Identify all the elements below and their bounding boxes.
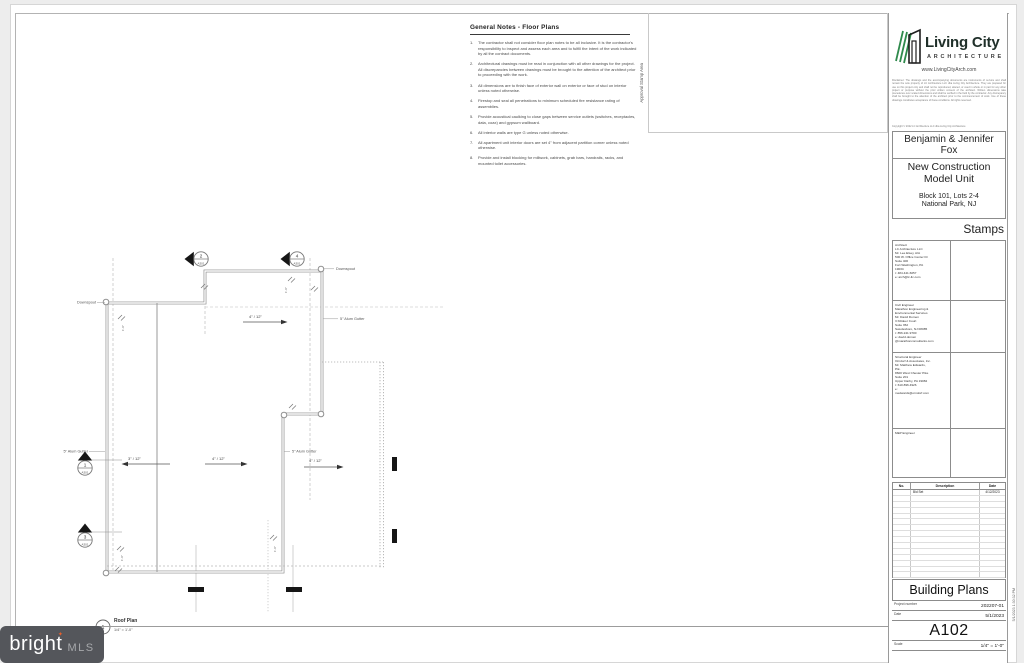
project-title: New Construction Model Unit: [893, 159, 1005, 185]
mep-engineer-info: MEP Engineer: [893, 429, 951, 477]
approval-stamp-label: Approval Stamp Area: [637, 35, 646, 130]
sheet-meta: Project number 202207-01 Date 5/1/2023 A…: [892, 601, 1006, 651]
stamps-header: Stamps: [892, 222, 1006, 236]
svg-text:A301: A301: [197, 262, 204, 266]
revision-header: No. Description Date: [893, 483, 1005, 490]
general-note-item: Architectural drawings must be read in c…: [470, 61, 638, 78]
svg-text:4: 4: [296, 254, 299, 259]
section-marker-1: 1 A301: [78, 452, 122, 476]
sparkle-icon: ✦: [58, 631, 64, 638]
section-marker-2: 2 A301: [185, 252, 209, 266]
gutter-label: 5" Alum Gutter: [63, 450, 88, 454]
sheet-scale: 1/4" = 1'-0": [981, 644, 1004, 649]
dim-label: 1'-0": [284, 287, 288, 293]
downspout-icon: [103, 299, 109, 305]
title-block: Living City ARCHITECTURE www.LivingCityA…: [888, 13, 1008, 663]
general-note-item: Firestop and seal all penetrations to mi…: [470, 98, 638, 109]
project-number: 202207-01: [981, 604, 1004, 609]
general-note-item: All dimensions are to finish face of ext…: [470, 83, 638, 94]
general-note-item: Provide acoustical caulking to close gap…: [470, 114, 638, 125]
plan-labels: Downspout Downspout 5" Alum Gutter 5" Al…: [63, 267, 365, 454]
general-note-item: The contractor shall not consider floor …: [470, 40, 638, 57]
downspout-symbols: [103, 266, 324, 576]
structural-engineer-info: Structural EngineerOrndorf & Associates,…: [893, 353, 951, 428]
dim-label: 1'-0": [120, 555, 124, 561]
view-title-block: Roof Plan 1/4" = 1'-0": [96, 618, 976, 632]
stamps-grid: ArchitectLC Architecture LLCMr. Lee Else…: [892, 240, 1006, 478]
drawing-sheet-page: 2 A301 4 A301 1 A301 3 A301: [0, 0, 1024, 663]
revision-row: [893, 572, 1005, 578]
bright-mls-logo: bright✦: [9, 633, 62, 656]
sheet-title: Building Plans: [892, 579, 1006, 601]
dimension-ticks: [115, 277, 318, 573]
slope-label: 3" / 12": [128, 456, 141, 461]
gutter-label: 5" Alum Gutter: [340, 317, 365, 321]
civil-engineer-info: Civil EngineerMarathon Engineering &Envi…: [893, 301, 951, 352]
general-note-item: Provide and install blocking for millwor…: [470, 155, 638, 166]
firm-tagline: ARCHITECTURE: [927, 54, 1004, 60]
view-title: Roof Plan: [114, 618, 976, 624]
dim-label: 1'-0": [273, 546, 277, 552]
general-note-item: All apartment unit interior doors are se…: [470, 140, 638, 151]
general-note-item: All interior walls are type G unless not…: [470, 130, 638, 136]
date-row: Date 5/1/2023: [892, 611, 1006, 621]
stamp-row-structural: Structural EngineerOrndorf & Associates,…: [893, 353, 1005, 429]
revision-rows: Bid Set4/12/2023: [893, 490, 1005, 578]
architect-stamp-area: [951, 241, 1005, 300]
firm-name: Living City: [925, 34, 1000, 51]
revision-table: No. Description Date Bid Set4/12/2023: [892, 482, 1006, 578]
client-name: Benjamin & Jennifer Fox: [893, 132, 1005, 159]
construction-lines: [113, 258, 445, 612]
dimension-labels: 1'-0" 1'-0" 1'-0" 1'-0": [120, 287, 288, 561]
stamp-row-mep: MEP Engineer: [893, 429, 1005, 477]
firm-website: www.LivingCityArch.com: [922, 67, 977, 73]
general-notes-title: General Notes - Floor Plans: [470, 24, 638, 31]
mep-stamp-area: [951, 429, 1005, 477]
bright-mls-watermark: bright✦ MLS: [0, 626, 104, 663]
downspout-label: Downspout: [336, 267, 356, 271]
view-title-underline: [96, 626, 976, 627]
approval-stamp-area: [648, 13, 888, 133]
sheet-date: 5/1/2023: [985, 614, 1004, 619]
downspout-label: Downspout: [77, 301, 97, 305]
project-location: Block 101, Lots 2-4 National Park, NJ: [893, 193, 1005, 209]
view-scale: 1/4" = 1'-0": [114, 628, 976, 632]
architect-info: ArchitectLC Architecture LLCMr. Lee Else…: [893, 241, 951, 300]
svg-text:2: 2: [200, 254, 203, 259]
slope-label: 4" / 12": [249, 314, 262, 319]
downspout-icon: [281, 412, 287, 418]
project-info-box: Benjamin & Jennifer Fox New Construction…: [892, 131, 1006, 219]
stamp-row-civil: Civil EngineerMarathon Engineering &Envi…: [893, 301, 1005, 353]
downspout-icon: [103, 570, 109, 576]
civil-stamp-area: [951, 301, 1005, 352]
hidden-structure-lines: [107, 362, 384, 568]
svg-text:A301: A301: [81, 471, 88, 475]
downspout-icon: [318, 266, 324, 272]
general-notes-list: The contractor shall not consider floor …: [470, 40, 638, 167]
svg-text:1: 1: [84, 463, 87, 468]
svg-text:A301: A301: [81, 543, 88, 547]
stamp-row-architect: ArchitectLC Architecture LLCMr. Lee Else…: [893, 241, 1005, 301]
section-marker-3: 3 A301: [78, 524, 122, 548]
svg-text:3: 3: [84, 535, 87, 540]
scale-row: Scale 1/4" = 1'-0": [892, 641, 1006, 651]
dim-label: 1'-0": [121, 325, 125, 331]
structural-stamp-area: [951, 353, 1005, 428]
gutter-label: 5" Alum Gutter: [292, 450, 317, 454]
slope-label: 4" / 12": [309, 458, 322, 463]
firm-disclaimer: Disclaimer: The drawings and the accompa…: [892, 79, 1006, 123]
firm-copyright: Copyright © 2022 LC Architecture LLC dba…: [892, 125, 1006, 128]
firm-logo-section: Living City ARCHITECTURE www.LivingCityA…: [892, 23, 1006, 80]
sheet-number: A102: [892, 621, 1006, 641]
general-notes-rule: [470, 34, 630, 35]
slope-label: 4" / 12": [212, 456, 225, 461]
project-number-row: Project number 202207-01: [892, 601, 1006, 611]
section-marker-4: 4 A301: [281, 252, 305, 266]
firm-logo-icon: Living City ARCHITECTURE www.LivingCityA…: [892, 23, 1006, 75]
general-notes: General Notes - Floor Plans The contract…: [470, 24, 638, 171]
roof-outline: [107, 271, 322, 572]
downspout-icon: [318, 411, 324, 417]
svg-text:A301: A301: [293, 262, 300, 266]
print-timestamp: 5/1/2023 1:30:32 PM: [1009, 555, 1018, 655]
